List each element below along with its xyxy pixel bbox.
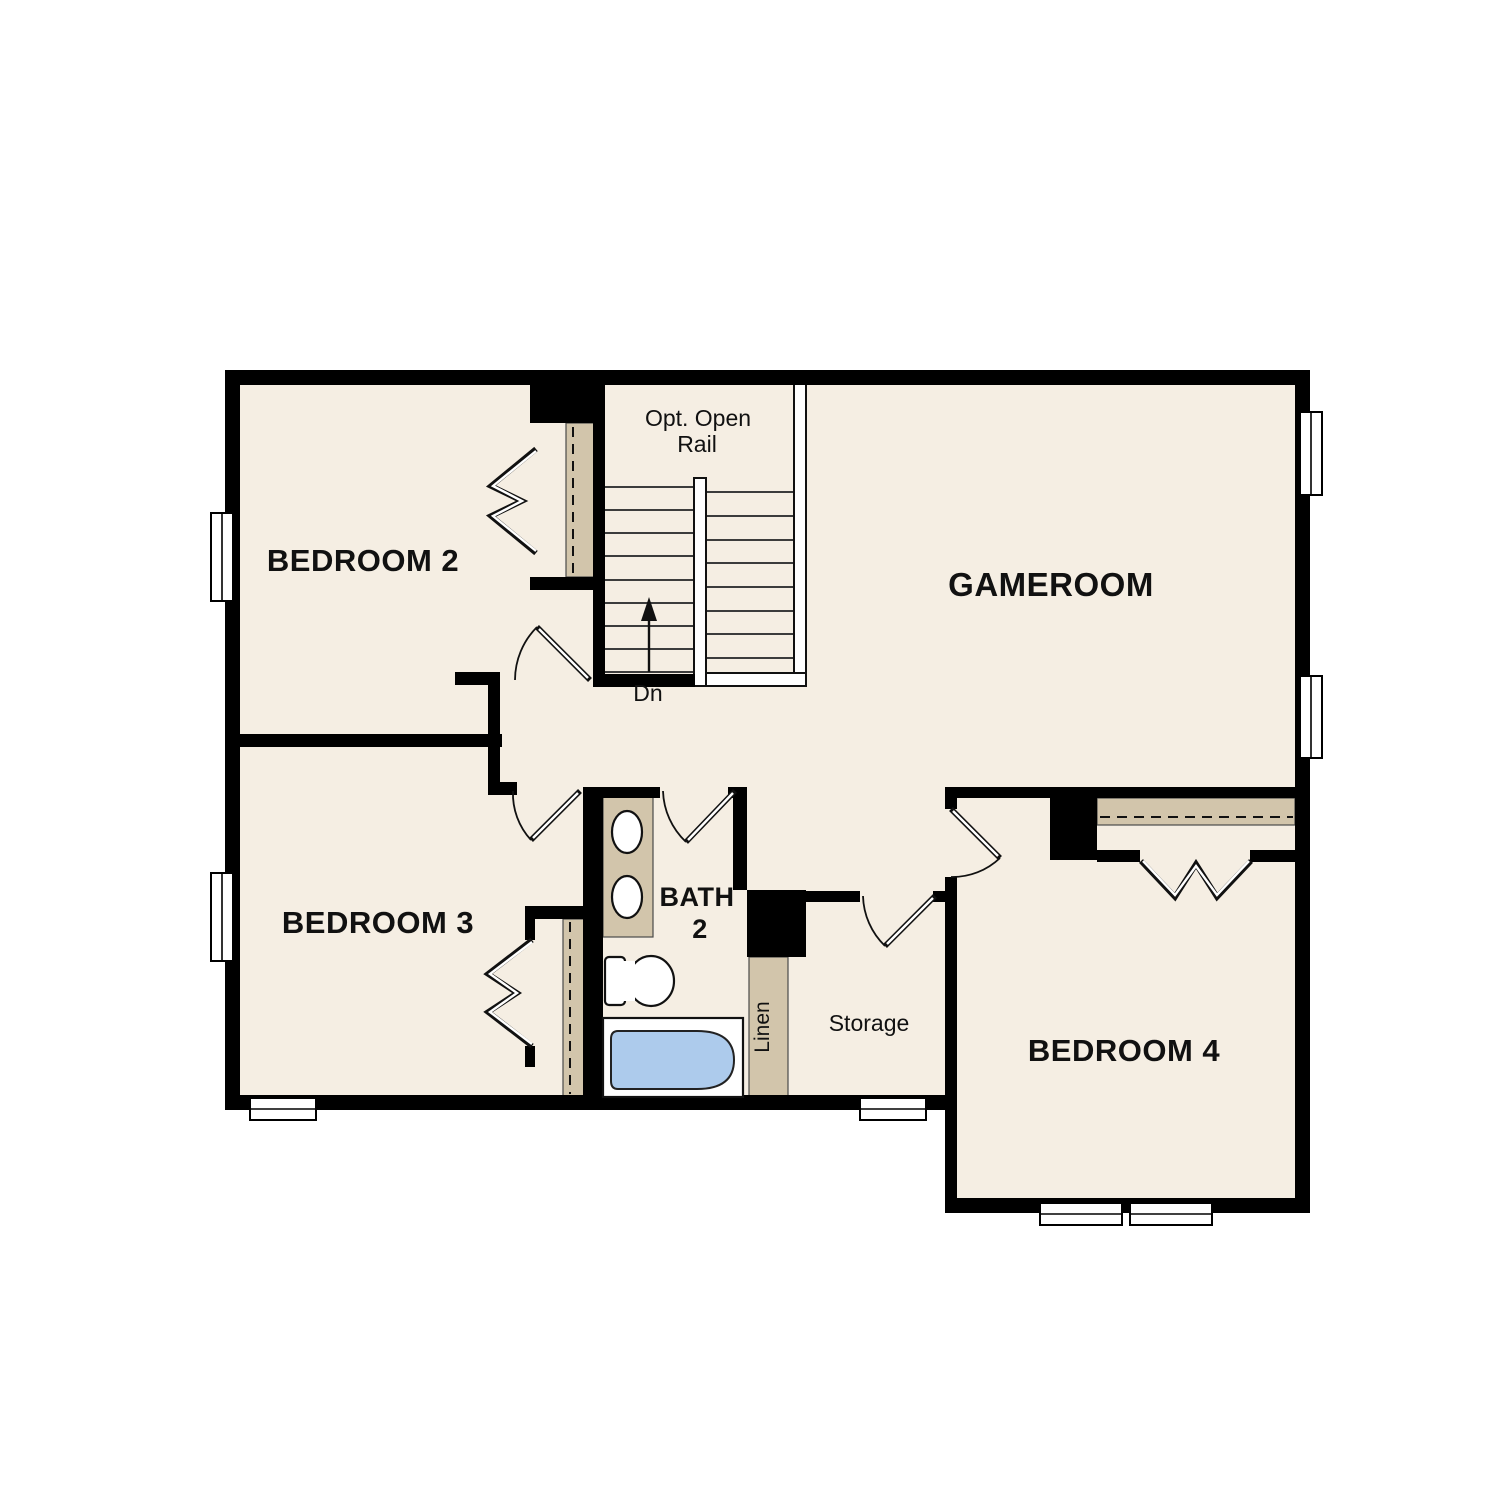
bedroom3-label: BEDROOM 3 xyxy=(282,905,474,940)
toilet-icon xyxy=(605,956,674,1006)
window xyxy=(1300,412,1322,495)
sink-icon xyxy=(612,876,642,918)
wall-stair-head-mass xyxy=(530,385,605,423)
wall-bedroom3-closet-stub-top xyxy=(525,919,535,940)
window xyxy=(1130,1203,1212,1225)
floor-plan-page: BEDROOM 2 BEDROOM 3 GAMEROOM BEDROOM 4 B… xyxy=(0,0,1500,1500)
floor-plan-drawing: BEDROOM 2 BEDROOM 3 GAMEROOM BEDROOM 4 B… xyxy=(0,0,1500,1500)
wall-bedroom4-closet-south-right xyxy=(1250,850,1295,862)
wall-outer-top xyxy=(225,370,1310,385)
wall-bedroom3-closet-north xyxy=(525,906,603,919)
stair-note-line1: Opt. Open xyxy=(645,405,751,431)
bedroom4-closet-shelf xyxy=(1097,798,1295,825)
wall-bedroom4-west xyxy=(945,877,957,1213)
window xyxy=(211,513,233,601)
bedroom4-label: BEDROOM 4 xyxy=(1028,1033,1221,1068)
wall-bedroom2-closet-south xyxy=(530,577,605,590)
window xyxy=(1040,1203,1122,1225)
bath2-label-line1: BATH xyxy=(660,882,735,912)
bedroom2-label: BEDROOM 2 xyxy=(267,543,459,578)
wall-linen-head-mass xyxy=(747,890,806,957)
bedroom2-closet-shelf xyxy=(566,423,595,577)
bath2-label-line2: 2 xyxy=(692,914,708,944)
stair-open-rail-bottom xyxy=(700,673,806,686)
window xyxy=(860,1098,926,1120)
sink-icon xyxy=(612,811,642,853)
wall-hall-west xyxy=(488,672,500,795)
storage-label: Storage xyxy=(829,1010,910,1036)
wall-bath-west xyxy=(583,787,603,1097)
stair-open-rail-right xyxy=(794,378,806,686)
gameroom-label: GAMEROOM xyxy=(948,566,1154,603)
bathtub-icon xyxy=(603,1018,743,1097)
wall-stairwell-west xyxy=(593,423,605,687)
stair-direction-label: Dn xyxy=(633,680,662,706)
wall-bedroom4-closet-mass xyxy=(1050,792,1097,860)
wall-bedroom2-door-jamb xyxy=(455,672,500,685)
stair-note-line2: Rail xyxy=(677,431,717,457)
toilet-seam xyxy=(623,961,635,1001)
linen-label: Linen xyxy=(751,1001,774,1052)
window xyxy=(211,873,233,961)
wall-bedroom3-closet-stub-bottom xyxy=(525,1046,535,1067)
wall-storage-north xyxy=(806,891,860,902)
wall-bedroom4-north xyxy=(945,787,1310,798)
wall-bedroom2-bedroom3 xyxy=(225,734,502,747)
window xyxy=(1300,676,1322,758)
wall-outer-bottom-bedroom4 xyxy=(945,1198,1310,1213)
wall-bedroom4-closet-south-left xyxy=(1097,850,1140,862)
wall-bath-north xyxy=(583,787,660,798)
wall-outer-bottom-left xyxy=(225,1095,957,1110)
wall-bath-east xyxy=(733,790,747,890)
stair-center-rail xyxy=(694,478,706,686)
wall-bedroom4-west-stub xyxy=(945,787,957,809)
window xyxy=(250,1098,316,1120)
